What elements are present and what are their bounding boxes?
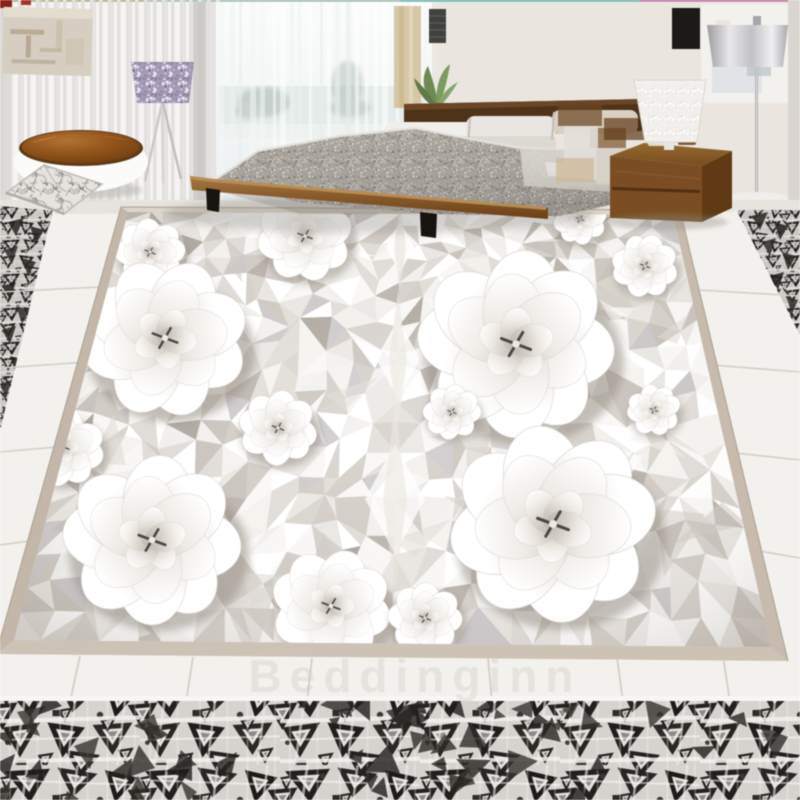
svg-text:Beddinginn: Beddinginn xyxy=(249,650,582,702)
